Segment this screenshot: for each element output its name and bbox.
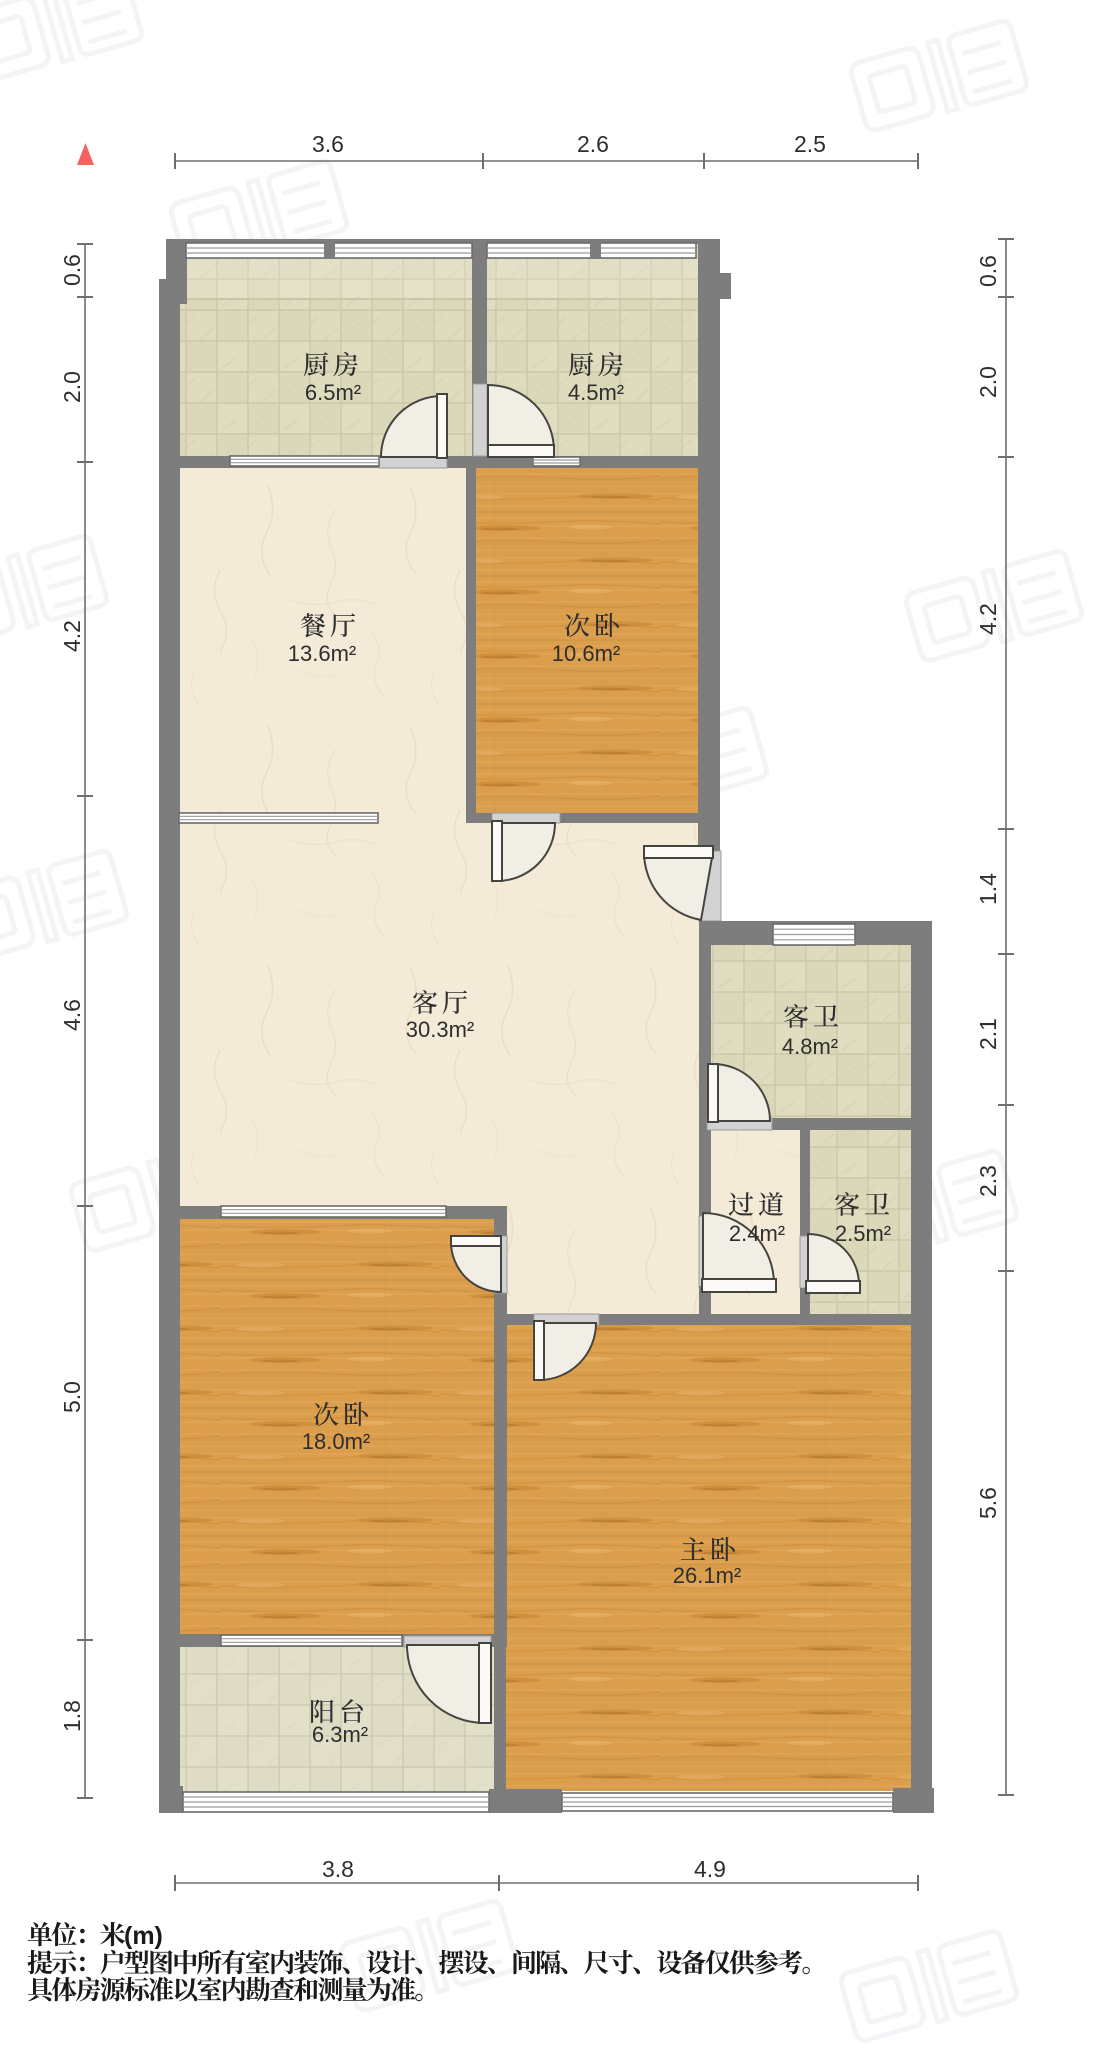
svg-text:4.5m²: 4.5m² — [568, 380, 624, 405]
svg-text:26.1m²: 26.1m² — [673, 1563, 741, 1588]
svg-text:6.5m²: 6.5m² — [305, 380, 361, 405]
svg-text:4.6: 4.6 — [59, 999, 85, 1031]
svg-text:4.8m²: 4.8m² — [782, 1034, 838, 1059]
svg-text:4.9: 4.9 — [694, 1856, 726, 1882]
svg-text:4.2: 4.2 — [59, 620, 85, 652]
svg-text:4.2: 4.2 — [975, 603, 1001, 635]
svg-text:3.6: 3.6 — [312, 131, 344, 157]
svg-text:13.6m²: 13.6m² — [288, 641, 356, 666]
svg-text:10.6m²: 10.6m² — [552, 641, 620, 666]
svg-text:2.0: 2.0 — [975, 366, 1001, 398]
svg-text:2.6: 2.6 — [577, 131, 609, 157]
svg-text:5.0: 5.0 — [59, 1381, 85, 1413]
svg-text:2.1: 2.1 — [975, 1018, 1001, 1050]
svg-text:1.8: 1.8 — [59, 1700, 85, 1732]
svg-text:0.6: 0.6 — [59, 254, 85, 286]
svg-text:6.3m²: 6.3m² — [312, 1722, 368, 1747]
svg-text:0.6: 0.6 — [975, 255, 1001, 287]
svg-text:30.3m²: 30.3m² — [406, 1017, 474, 1042]
svg-text:2.0: 2.0 — [59, 371, 85, 403]
svg-text:5.6: 5.6 — [975, 1487, 1001, 1519]
svg-text:18.0m²: 18.0m² — [302, 1429, 370, 1454]
svg-text:2.5: 2.5 — [794, 131, 826, 157]
svg-text:2.3: 2.3 — [975, 1165, 1001, 1197]
svg-text:3.8: 3.8 — [322, 1856, 354, 1882]
svg-text:(m): (m) — [124, 1922, 163, 1950]
svg-text:2.4m²: 2.4m² — [729, 1221, 785, 1246]
svg-text:2.5m²: 2.5m² — [835, 1221, 891, 1246]
svg-text:1.4: 1.4 — [975, 873, 1001, 905]
